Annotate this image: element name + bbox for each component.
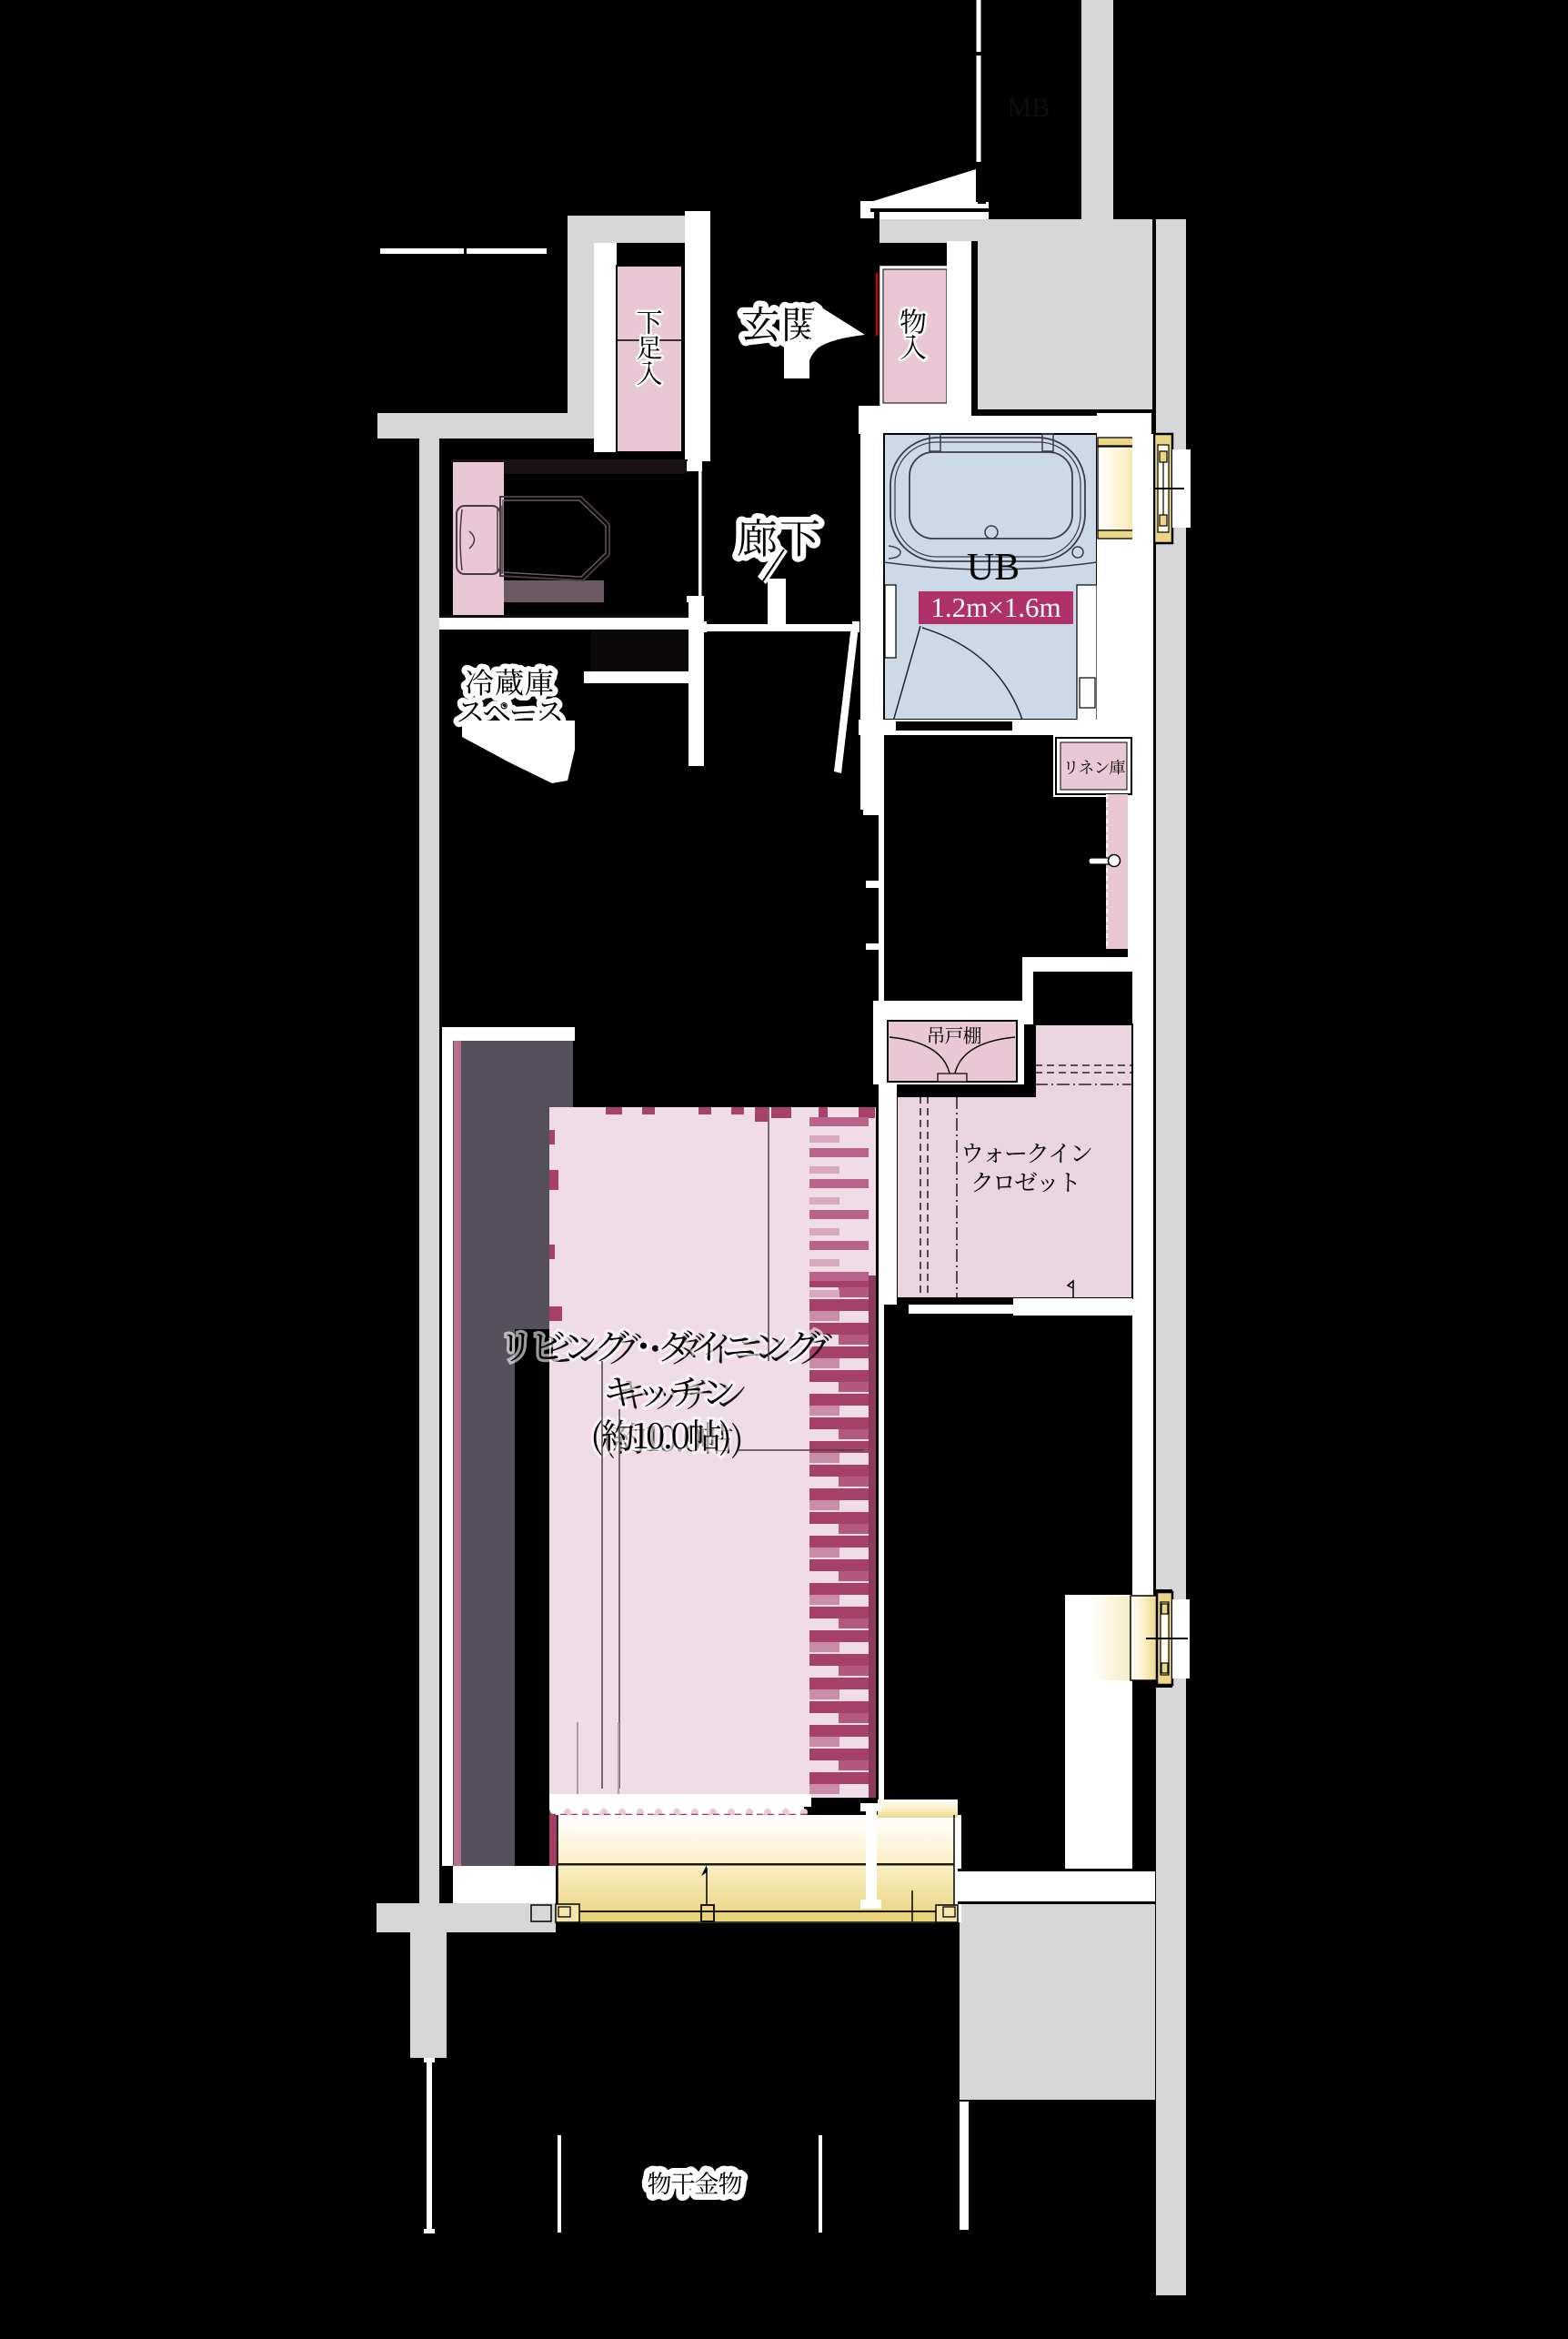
svg-text:1.2m×1.6m: 1.2m×1.6m bbox=[930, 591, 1060, 623]
svg-text:UB: UB bbox=[967, 547, 1020, 589]
svg-text:MB: MB bbox=[1008, 93, 1050, 123]
